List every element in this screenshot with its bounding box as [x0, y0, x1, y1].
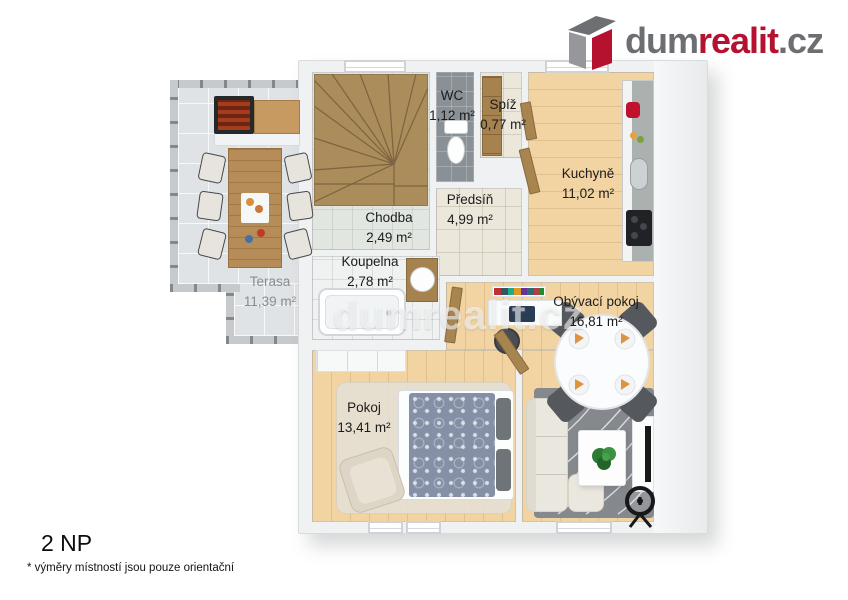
food-item [246, 198, 254, 206]
floor-label: 2 NP [41, 530, 92, 557]
room-name: Koupelna [341, 252, 398, 272]
room-label-spiz: Spíž 0,77 m² [480, 95, 526, 134]
kitchen-sink [630, 158, 648, 190]
room-area: 4,99 m² [447, 210, 494, 230]
room-area: 1,12 m² [429, 106, 475, 126]
terrace-table [228, 148, 282, 268]
fruit [637, 136, 644, 143]
plant [588, 442, 620, 474]
room-area: 2,78 m² [341, 272, 398, 292]
dumrealit-logo-text: dumrealit.cz [625, 20, 823, 62]
terrace-railing-mid [226, 284, 234, 344]
room-label-chodba: Chodba 2,49 m² [365, 208, 412, 247]
watermark: dumrealit.cz [333, 292, 584, 339]
grill-side-counter [254, 100, 300, 134]
logo-part-dum: dum [625, 20, 698, 61]
grill-cabinet [214, 132, 300, 146]
terrace-chair [196, 190, 224, 221]
fan [614, 484, 662, 528]
bed [398, 390, 514, 500]
terrace-chair [286, 190, 314, 221]
room-label-terasa: Terasa 11,39 m² [244, 272, 296, 311]
dumrealit-logo: dumrealit.cz [568, 12, 823, 70]
stove [626, 210, 652, 246]
food-item [255, 205, 263, 213]
room-name: Chodba [365, 208, 412, 228]
room-name: Terasa [244, 272, 296, 292]
logo-part-cz: .cz [778, 20, 823, 61]
room-label-wc: WC 1,12 m² [429, 86, 475, 125]
wardrobe [316, 350, 406, 372]
window-bedroom-2 [406, 521, 441, 534]
bed-pillow [496, 398, 511, 440]
dumrealit-logo-icon [568, 12, 616, 70]
burner [631, 232, 638, 239]
room-name: Pokoj [337, 398, 390, 418]
kitchen-mixer [626, 102, 640, 118]
blue-cup [245, 235, 253, 243]
room-name: Kuchyně [562, 164, 615, 184]
room-label-obyvaci-pokoj: Obývací pokoj 16,81 m² [553, 292, 639, 331]
room-area: 11,02 m² [562, 184, 615, 204]
floorplan-page: WC 1,12 m² Spíž 0,77 m² Kuchyně 11,02 m²… [0, 0, 848, 600]
burner [640, 223, 647, 230]
room-name: WC [429, 86, 475, 106]
staircase [314, 74, 428, 206]
fruit [630, 132, 637, 139]
room-area: 16,81 m² [553, 312, 639, 332]
window-bedroom-1 [368, 521, 403, 534]
tv [645, 426, 651, 482]
room-area: 0,77 m² [480, 115, 526, 135]
room-area: 11,39 m² [244, 292, 296, 312]
room-label-predsin: Předsíň 4,99 m² [447, 190, 494, 229]
terrace-railing-bottom [226, 336, 308, 344]
window-stairs [344, 60, 406, 73]
room-label-pokoj: Pokoj 13,41 m² [337, 398, 390, 437]
room-label-koupelna: Koupelna 2,78 m² [341, 252, 398, 291]
terrace-railing-top [176, 80, 308, 88]
grill [214, 96, 254, 134]
bathroom-sink [410, 267, 435, 292]
room-label-kuchyne: Kuchyně 11,02 m² [562, 164, 615, 203]
room-area: 13,41 m² [337, 418, 390, 438]
burner [631, 216, 638, 223]
room-name: Spíž [480, 95, 526, 115]
toilet-bowl [447, 136, 465, 164]
red-cup [257, 229, 265, 237]
serving-tray [241, 193, 269, 223]
room-area: 2,49 m² [365, 228, 412, 248]
logo-part-realit: realit [698, 20, 778, 61]
footnote: * výměry místností jsou pouze orientační [27, 562, 234, 574]
room-name: Předsíň [447, 190, 494, 210]
room-name: Obývací pokoj [553, 292, 639, 312]
bed-blanket [409, 393, 495, 497]
terrace-railing-left [170, 80, 178, 292]
bed-pillow [496, 449, 511, 491]
window-living [556, 521, 612, 534]
armchair-seat [348, 455, 398, 505]
grill-grate [218, 100, 250, 130]
